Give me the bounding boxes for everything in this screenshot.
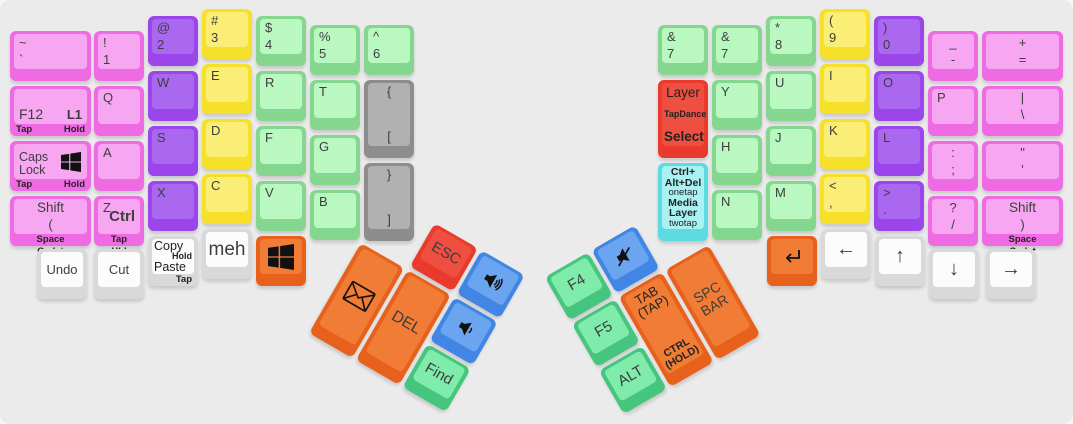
key-label: ; [932,163,974,177]
keycap-arrow-left: ← [825,232,867,267]
key-label: & [667,30,676,44]
keycap-d: D [206,122,248,157]
key-a[interactable]: A [94,141,144,191]
keycap-esc: ESC [419,228,473,279]
key-label-stack: LayerTapDanceSelect [662,83,704,146]
key-label: ] [368,213,410,227]
key-c[interactable]: C [202,174,252,224]
key-label: K [829,124,838,138]
key-y[interactable]: Y [712,80,762,130]
keycap-g: G [314,138,356,173]
key-label: → [990,252,1032,287]
key-label: CTRL (HOLD) [656,333,703,372]
key-cut[interactable]: Cut [94,249,144,299]
key-label: < [829,179,837,193]
key-label: : [932,146,974,160]
key-o[interactable]: O [874,71,924,121]
key-label: { [368,85,410,99]
windows-icon [61,152,81,172]
key-k[interactable]: K [820,119,870,169]
key-label: R [265,76,274,90]
keycap-copy-paste: CopyHoldPaste [152,239,194,274]
keycap-f12-layer1: F12L1 [14,89,87,124]
key-win-key[interactable] [256,236,306,286]
key-label: X [157,186,166,200]
key-front-label: Space Cadet [37,234,65,246]
key-amp-7-inner[interactable]: &7 [658,25,708,75]
key-label: A [103,146,112,160]
keycap-at-2: @2 [152,19,194,54]
key-label: J [775,131,782,145]
keycap-question-slash: ?/ [932,199,974,234]
key-dollar-4[interactable]: $4 [256,16,306,66]
key-label: 5 [319,47,326,61]
key-front-label: Tap [176,274,192,286]
key-f[interactable]: F [256,126,306,176]
key-label: TapDance [662,110,704,119]
key-q[interactable]: Q [94,86,144,136]
key-label: F [265,131,273,145]
key-label: Undo [41,252,83,287]
key-u[interactable]: U [766,71,816,121]
key-star-8[interactable]: *8 [766,16,816,66]
key-b[interactable]: B [310,190,360,240]
key-label: & [721,30,730,44]
keycap-c: C [206,177,248,212]
key-d[interactable]: D [202,119,252,169]
key-j[interactable]: J [766,126,816,176]
keycap-p: P [932,89,974,124]
keycap-v: V [260,184,302,219]
key-label: 3 [211,31,218,45]
key-front-labels: TapHold [16,124,85,136]
key-ctrl-alt-del-media[interactable]: Ctrl+ Alt+DelonetapMedia Layertwotap [658,163,708,241]
key-meh[interactable]: meh [202,229,252,279]
key-front-label: Tap Hld [111,234,127,246]
key-colon-semicolon[interactable]: :; [928,141,978,191]
key-label: Media Layer [662,198,704,219]
keycap-left-shift: Shift( [14,199,87,234]
key-label: W [157,76,169,90]
key-p[interactable]: P [928,86,978,136]
keycap-x: X [152,184,194,219]
keycap-j: J [770,129,812,164]
key-label: 9 [829,31,836,45]
key-label: . [883,203,887,217]
key-label: T [319,85,327,99]
key-lparen-9[interactable]: (9 [820,9,870,59]
key-label: 8 [775,38,782,52]
keycap-amp-7: &7 [716,28,758,63]
keyboard-board: ~`F12L1TapHoldCaps LockTapHoldShift(Spac… [0,0,1073,424]
keycap-volume-up [466,255,520,306]
key-label: Shift [14,201,87,215]
key-g[interactable]: G [310,135,360,185]
key-rbracket[interactable]: }] [364,163,414,241]
key-label: ~ [19,36,27,50]
key-arrow-up[interactable]: ↑ [875,236,925,286]
keycap-win-key [260,239,302,274]
key-front-label: Hold [62,124,85,136]
key-label: 7 [721,47,728,61]
keycap-rbracket: }] [368,166,410,229]
key-front-label: Tap [16,179,39,191]
key-tilde-grave[interactable]: ~` [10,31,91,81]
key-e[interactable]: E [202,64,252,114]
vol-up-icon [466,255,520,306]
keycap-plus-equals: += [986,34,1059,69]
key-front-labels: Space Cadet [988,234,1057,246]
keycap-layer-tapdance-select: LayerTapDanceSelect [662,83,704,146]
key-front-label: Space Cadet [1009,234,1037,246]
key-quote[interactable]: "' [982,141,1063,191]
key-label: ! [103,36,107,50]
keycap-y: Y [716,83,758,118]
keycap-undo: Undo [41,252,83,287]
mute-icon [596,230,650,281]
keycap-k: K [824,122,866,157]
key-label: L1 [67,108,82,122]
key-label: S [157,131,166,145]
key-x[interactable]: X [148,181,198,231]
key-label: # [211,14,218,28]
key-label: ? [932,201,974,215]
keycap-pct-5: %5 [314,28,356,63]
keycap-q: Q [98,89,140,124]
keycap-colon-semicolon: :; [932,144,974,179]
key-h[interactable]: H [712,135,762,185]
key-label: 0 [883,38,890,52]
key-label: / [932,218,974,232]
keycap-underscore-minus: _- [932,34,974,69]
key-capslock-win[interactable]: Caps LockTapHold [10,141,91,191]
key-label: 7 [667,47,674,61]
keycap-dollar-4: $4 [260,19,302,54]
key-front-labels: Tap Hld [100,234,138,246]
keycap-b: B [314,193,356,228]
key-label: Cut [98,252,140,287]
key-label: ( [14,218,87,232]
keycap-cut: Cut [98,252,140,287]
key-i[interactable]: I [820,64,870,114]
key-label: B [319,195,328,209]
key-label: ` [19,53,23,67]
key-label: Layer [662,86,704,100]
key-label: TAB (TAP) [625,279,674,323]
key-label: N [721,195,730,209]
key-label: [ [368,130,410,144]
key-pct-5[interactable]: %5 [310,25,360,75]
key-label: L [883,131,890,145]
key-t[interactable]: T [310,80,360,130]
key-label: " [986,146,1059,160]
windows-icon [260,239,302,274]
keycap-arrow-right: → [990,252,1032,287]
key-copy-paste[interactable]: CopyHoldPasteTap [148,236,198,286]
key-front-labels: Tap [154,274,192,286]
key-label: ) [883,21,887,35]
keycap-n: N [716,193,758,228]
keycap-t: T [314,83,356,118]
key-label: U [775,76,784,90]
key-label: F4 [550,257,604,308]
key-label: Ctrl [109,209,135,225]
keycap-l: L [878,129,920,164]
key-z-ctrl[interactable]: ZCtrlTap Hld [94,196,144,246]
key-label: H [721,140,730,154]
key-layer-tapdance-select[interactable]: LayerTapDanceSelect [658,80,708,158]
keycap-star-8: *8 [770,19,812,54]
key-label: Ctrl+ Alt+Del [662,167,704,188]
key-label: ↓ [933,252,975,287]
key-label: Paste [152,261,194,274]
key-label: ' [986,163,1059,177]
key-label: F12 [19,107,43,122]
key-underscore-minus[interactable]: _- [928,31,978,81]
key-label: 4 [265,38,272,52]
keycap-capslock-win: Caps Lock [14,144,87,179]
key-amp-7[interactable]: &7 [712,25,762,75]
key-label-stack: CopyHoldPaste [152,239,194,274]
key-label: E [211,69,220,83]
key-arrow-left[interactable]: ← [821,229,871,279]
keycap-lbracket: {[ [368,83,410,146]
key-label: ) [986,218,1059,232]
keycap-gt-period: >. [878,184,920,219]
key-label: ( [829,14,833,28]
key-label: * [775,21,780,35]
key-label: + [986,36,1059,50]
key-arrow-down[interactable]: ↓ [929,249,979,299]
key-label: Y [721,85,730,99]
keycap-excl-1: !1 [98,34,140,69]
key-s[interactable]: S [148,126,198,176]
key-caret-6[interactable]: ^6 [364,25,414,75]
keycap-w: W [152,74,194,109]
key-label: , [829,196,833,210]
key-front-label: Hold [62,179,85,191]
key-label: meh [206,232,248,267]
key-label: $ [265,21,272,35]
keycap-tilde-grave: ~` [14,34,87,69]
key-label: 6 [373,47,380,61]
keycap-lparen-9: (9 [824,12,866,47]
key-label: 2 [157,38,164,52]
key-label: O [883,76,893,90]
key-label: Shift [986,201,1059,215]
keycap-meh: meh [206,232,248,267]
key-label: > [883,186,891,200]
key-gt-period[interactable]: >. [874,181,924,231]
keycap-r: R [260,74,302,109]
key-label: } [368,168,410,182]
keycap-h: H [716,138,758,173]
key-label: Select [662,130,704,144]
key-label: P [937,91,946,105]
key-excl-1[interactable]: !1 [94,31,144,81]
keycap-arrow-up: ↑ [879,239,921,274]
keycap-caret-6: ^6 [368,28,410,63]
key-v[interactable]: V [256,181,306,231]
key-left-shift[interactable]: Shift(Space Cadet [10,196,91,246]
key-m[interactable]: M [766,181,816,231]
key-lt-comma[interactable]: <, [820,174,870,224]
key-pipe-backslash[interactable]: |\ [982,86,1063,136]
key-right-shift[interactable]: Shift)Space Cadet [982,196,1063,246]
keycap-pipe-backslash: |\ [986,89,1059,124]
key-label: ← [825,232,867,267]
keycap-enter [771,239,813,274]
key-label: G [319,140,329,154]
keycap-a: A [98,144,140,179]
keycap-f4: F4 [550,257,604,308]
key-label: V [265,186,274,200]
keycap-mute [596,230,650,281]
key-front-labels: Space Cadet [16,234,85,246]
enter-icon [771,239,813,274]
key-label: Caps Lock [19,151,48,177]
key-l[interactable]: L [874,126,924,176]
key-label: Q [103,91,113,105]
keycap-e: E [206,67,248,102]
key-rparen-0[interactable]: )0 [874,16,924,66]
keycap-s: S [152,129,194,164]
key-plus-equals[interactable]: += [982,31,1063,81]
keycap-hash-3: #3 [206,12,248,47]
key-label: _ [932,36,974,50]
key-front-labels: TapHold [16,179,85,191]
key-label: = [986,53,1059,67]
key-hash-3[interactable]: #3 [202,9,252,59]
key-f12-layer1[interactable]: F12L1TapHold [10,86,91,136]
keycap-arrow-down: ↓ [933,252,975,287]
keycap-quote: "' [986,144,1059,179]
keycap-right-shift: Shift) [986,199,1059,234]
key-r[interactable]: R [256,71,306,121]
keycap-i: I [824,67,866,102]
key-label: 1 [103,53,110,67]
key-arrow-right[interactable]: → [986,249,1036,299]
keycap-amp-7-inner: &7 [662,28,704,63]
key-label: twotap [662,219,704,229]
keycap-rparen-0: )0 [878,19,920,54]
key-front-label: Tap [16,124,39,136]
key-w[interactable]: W [148,71,198,121]
key-label: D [211,124,220,138]
key-label: @ [157,21,170,35]
key-label: ^ [373,30,379,44]
key-label: C [211,179,220,193]
keycap-o: O [878,74,920,109]
key-label: \ [986,108,1059,122]
key-label: ↑ [879,239,921,274]
key-label-stack: Ctrl+ Alt+DelonetapMedia Layertwotap [662,166,704,229]
key-label: I [829,69,833,83]
keycap-m: M [770,184,812,219]
key-label: - [932,53,974,67]
keycap-f: F [260,129,302,164]
key-label: | [986,91,1059,105]
key-at-2[interactable]: @2 [148,16,198,66]
key-label: ESC [419,228,473,279]
key-undo[interactable]: Undo [37,249,87,299]
keycap-lt-comma: <, [824,177,866,212]
key-label: M [775,186,786,200]
keycap-z-ctrl: ZCtrl [98,199,140,234]
key-question-slash[interactable]: ?/ [928,196,978,246]
key-enter[interactable] [767,236,817,286]
key-lbracket[interactable]: {[ [364,80,414,158]
keycap-u: U [770,74,812,109]
keycap-ctrl-alt-del-media: Ctrl+ Alt+DelonetapMedia Layertwotap [662,166,704,229]
key-label: % [319,30,331,44]
key-n[interactable]: N [712,190,762,240]
